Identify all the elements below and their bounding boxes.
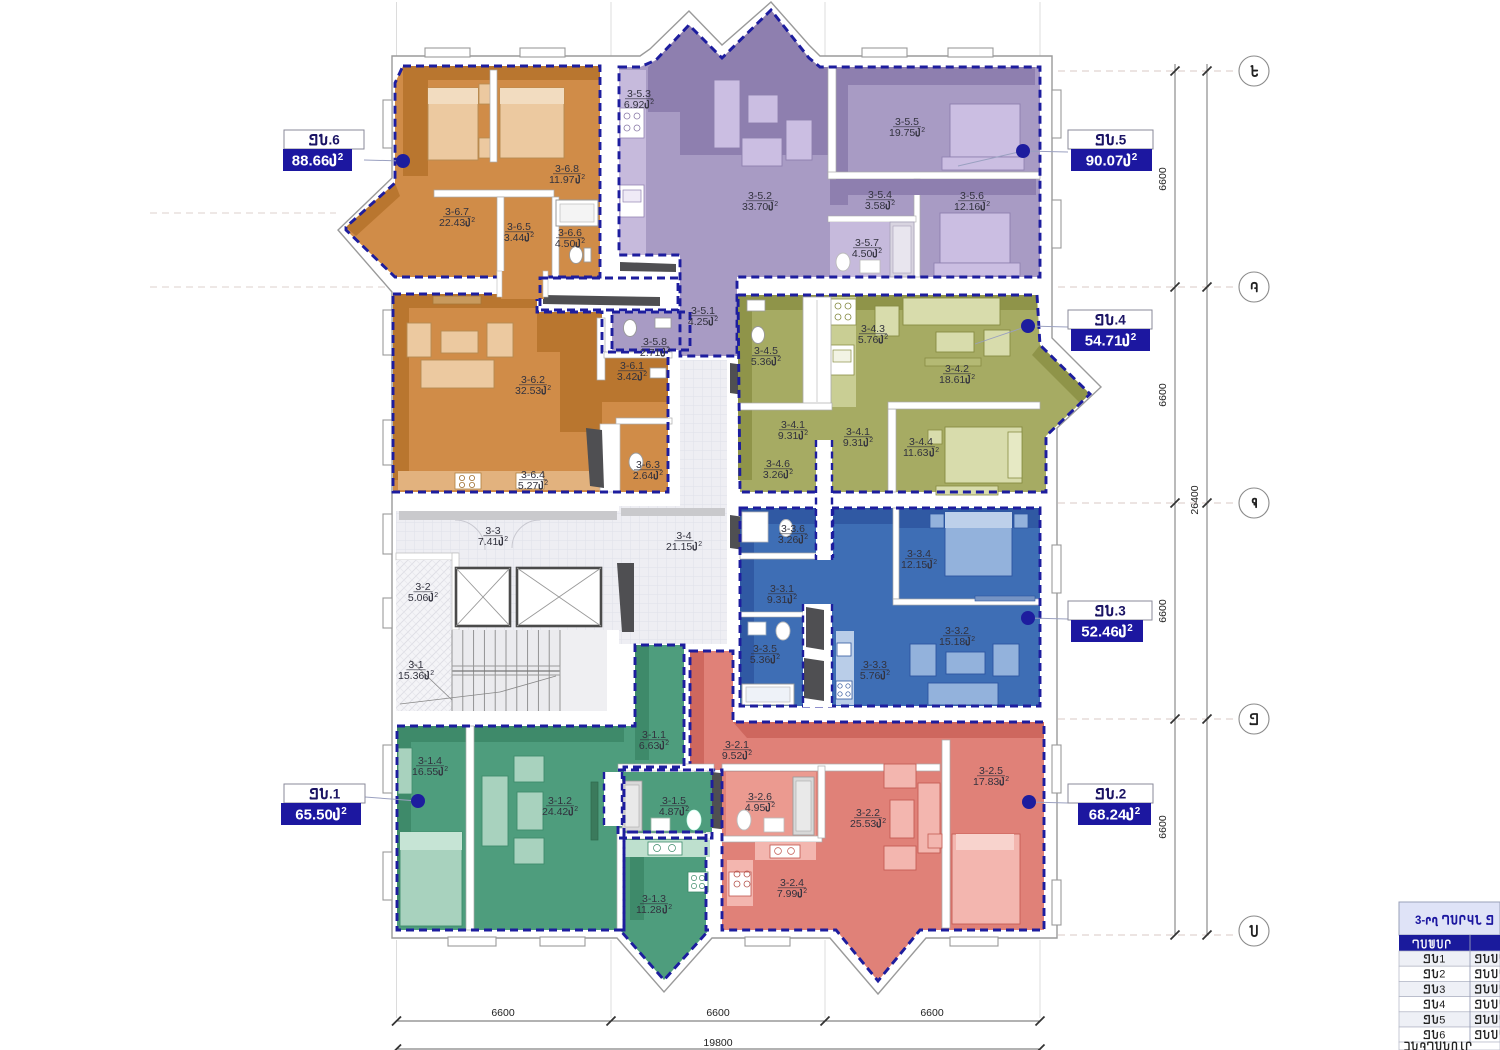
svg-text:5.06: 5.06 bbox=[408, 592, 429, 604]
svg-text:2: 2 bbox=[665, 740, 669, 747]
svg-text:68.24: 68.24 bbox=[1089, 807, 1127, 824]
svg-text:32.53: 32.53 bbox=[515, 385, 541, 397]
svg-text:2: 2 bbox=[771, 802, 775, 809]
svg-text:2: 2 bbox=[685, 806, 689, 813]
svg-text:2: 2 bbox=[971, 636, 975, 643]
svg-text:90.07: 90.07 bbox=[1086, 153, 1124, 170]
svg-text:2: 2 bbox=[1439, 969, 1445, 981]
svg-text:2: 2 bbox=[668, 904, 672, 911]
svg-text:5.27: 5.27 bbox=[518, 480, 539, 492]
svg-text:2: 2 bbox=[1005, 776, 1009, 783]
svg-text:9.31: 9.31 bbox=[778, 430, 799, 442]
svg-text:2: 2 bbox=[884, 334, 888, 341]
svg-text:2: 2 bbox=[574, 806, 578, 813]
svg-text:6600: 6600 bbox=[1157, 815, 1169, 839]
svg-text:33.70: 33.70 bbox=[742, 201, 768, 213]
svg-text:2: 2 bbox=[698, 541, 702, 548]
svg-text:11.63: 11.63 bbox=[903, 447, 929, 459]
svg-text:2: 2 bbox=[776, 654, 780, 661]
svg-text:2: 2 bbox=[444, 766, 448, 773]
svg-text:3.44: 3.44 bbox=[504, 232, 525, 244]
svg-text:2: 2 bbox=[504, 536, 508, 543]
svg-text:3.42: 3.42 bbox=[617, 371, 638, 383]
svg-text:21.15: 21.15 bbox=[666, 541, 692, 553]
svg-text:3.58: 3.58 bbox=[865, 200, 886, 212]
svg-text:18.61: 18.61 bbox=[939, 374, 965, 386]
svg-text:19.75: 19.75 bbox=[889, 127, 915, 139]
svg-text:19800: 19800 bbox=[703, 1037, 732, 1049]
svg-text:3: 3 bbox=[1439, 984, 1445, 996]
svg-text:2: 2 bbox=[777, 356, 781, 363]
svg-text:.2: .2 bbox=[1115, 787, 1126, 802]
svg-text:6600: 6600 bbox=[1157, 383, 1169, 407]
svg-text:6.92: 6.92 bbox=[624, 99, 645, 111]
svg-text:3-: 3- bbox=[1415, 915, 1425, 927]
svg-text:6: 6 bbox=[1439, 1030, 1445, 1042]
svg-text:2: 2 bbox=[804, 534, 808, 541]
svg-text:2: 2 bbox=[659, 470, 663, 477]
svg-text:1: 1 bbox=[1439, 954, 1445, 966]
svg-text:2.64: 2.64 bbox=[633, 470, 654, 482]
svg-text:5.36: 5.36 bbox=[750, 654, 771, 666]
svg-text:2: 2 bbox=[886, 670, 890, 677]
svg-text:2: 2 bbox=[547, 385, 551, 392]
svg-text:2: 2 bbox=[341, 806, 347, 817]
svg-text:4.25: 4.25 bbox=[688, 316, 709, 328]
svg-text:6600: 6600 bbox=[920, 1007, 944, 1019]
svg-text:5.76: 5.76 bbox=[860, 670, 881, 682]
svg-text:4.95: 4.95 bbox=[745, 802, 766, 814]
svg-text:2: 2 bbox=[1127, 623, 1133, 634]
svg-text:2: 2 bbox=[650, 99, 654, 106]
svg-text:88.66: 88.66 bbox=[292, 153, 330, 170]
svg-text:9.52: 9.52 bbox=[722, 750, 743, 762]
svg-text:5.76: 5.76 bbox=[858, 334, 879, 346]
svg-text:2: 2 bbox=[666, 347, 670, 354]
svg-text:6.63: 6.63 bbox=[639, 740, 660, 752]
svg-text:2: 2 bbox=[774, 201, 778, 208]
svg-text:2: 2 bbox=[935, 447, 939, 454]
svg-text:3.26: 3.26 bbox=[778, 534, 799, 546]
svg-text:5: 5 bbox=[1439, 1014, 1445, 1026]
svg-text:9.31: 9.31 bbox=[843, 437, 864, 449]
svg-text:2: 2 bbox=[338, 152, 344, 163]
svg-text:11.97: 11.97 bbox=[549, 174, 575, 186]
svg-text:2: 2 bbox=[882, 818, 886, 825]
svg-text:4.50: 4.50 bbox=[555, 238, 576, 250]
svg-text:22.43: 22.43 bbox=[439, 217, 465, 229]
svg-text:2: 2 bbox=[891, 200, 895, 207]
svg-text:6600: 6600 bbox=[1157, 167, 1169, 191]
svg-text:16.55: 16.55 bbox=[412, 766, 438, 778]
svg-text:2: 2 bbox=[789, 469, 793, 476]
svg-text:6600: 6600 bbox=[491, 1007, 515, 1019]
svg-text:7.99: 7.99 bbox=[777, 888, 798, 900]
svg-text:2: 2 bbox=[643, 371, 647, 378]
svg-text:.6: .6 bbox=[329, 133, 341, 148]
svg-text:2: 2 bbox=[714, 316, 718, 323]
svg-text:2: 2 bbox=[434, 592, 438, 599]
svg-text:6600: 6600 bbox=[1157, 599, 1169, 623]
svg-text:2.71: 2.71 bbox=[640, 347, 661, 359]
svg-text:2: 2 bbox=[971, 374, 975, 381]
svg-text:2: 2 bbox=[869, 437, 873, 444]
svg-text:17.83: 17.83 bbox=[973, 776, 999, 788]
svg-text:2: 2 bbox=[793, 594, 797, 601]
svg-text:2: 2 bbox=[804, 430, 808, 437]
svg-text:2: 2 bbox=[581, 174, 585, 181]
svg-text:4.50: 4.50 bbox=[852, 248, 873, 260]
svg-text:2: 2 bbox=[544, 480, 548, 487]
svg-text:2: 2 bbox=[921, 127, 925, 134]
svg-text:2: 2 bbox=[1132, 152, 1138, 163]
svg-text:15.36: 15.36 bbox=[398, 670, 424, 682]
svg-text:24.42: 24.42 bbox=[542, 806, 568, 818]
svg-text:.1: .1 bbox=[329, 787, 341, 802]
svg-text:.3: .3 bbox=[1115, 604, 1127, 619]
svg-text:25.53: 25.53 bbox=[850, 818, 876, 830]
svg-text:2: 2 bbox=[878, 248, 882, 255]
svg-text:65.50: 65.50 bbox=[295, 807, 333, 824]
svg-text:2: 2 bbox=[986, 201, 990, 208]
svg-text:2: 2 bbox=[530, 232, 534, 239]
svg-text:6600: 6600 bbox=[706, 1007, 730, 1019]
svg-text:2: 2 bbox=[471, 217, 475, 224]
svg-text:.5: .5 bbox=[1115, 133, 1127, 148]
svg-text:9.31: 9.31 bbox=[767, 594, 788, 606]
svg-text:2: 2 bbox=[748, 750, 752, 757]
svg-text:7.41: 7.41 bbox=[478, 536, 499, 548]
svg-text:2: 2 bbox=[933, 559, 937, 566]
svg-text:3.26: 3.26 bbox=[763, 469, 784, 481]
svg-text:2: 2 bbox=[803, 888, 807, 895]
svg-text:2: 2 bbox=[1135, 806, 1141, 817]
svg-text:12.16: 12.16 bbox=[954, 201, 980, 213]
svg-text:15.18: 15.18 bbox=[939, 636, 965, 648]
svg-text:12.15: 12.15 bbox=[901, 559, 927, 571]
svg-text:4.87: 4.87 bbox=[659, 806, 680, 818]
svg-text:26400: 26400 bbox=[1189, 485, 1201, 514]
svg-text:11.28: 11.28 bbox=[636, 904, 662, 916]
svg-text:2: 2 bbox=[1131, 332, 1137, 343]
svg-text:4: 4 bbox=[1439, 999, 1445, 1011]
svg-text:.4: .4 bbox=[1115, 313, 1127, 328]
svg-text:2: 2 bbox=[581, 238, 585, 245]
svg-text:54.71: 54.71 bbox=[1085, 333, 1123, 350]
svg-text:52.46: 52.46 bbox=[1081, 624, 1119, 641]
svg-text:2: 2 bbox=[430, 670, 434, 677]
svg-text:5.36: 5.36 bbox=[751, 356, 772, 368]
